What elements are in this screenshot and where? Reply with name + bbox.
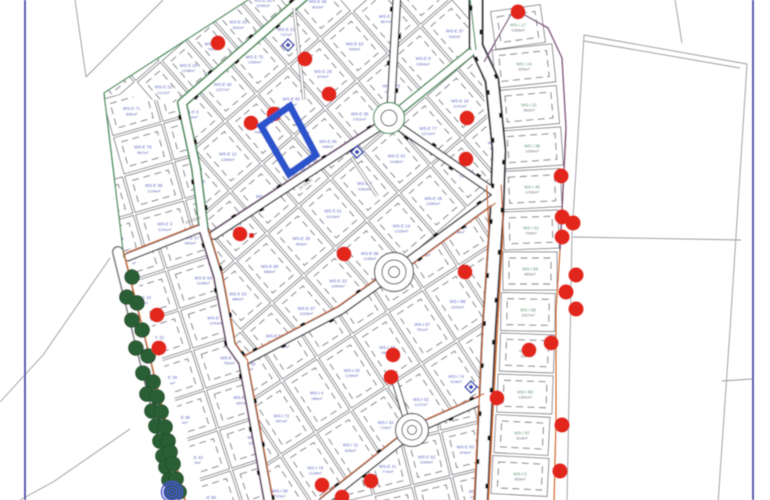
svg-text:788m²: 788m²	[311, 396, 323, 401]
svg-text:1236m²: 1236m²	[525, 190, 539, 195]
svg-text:925m²: 925m²	[345, 448, 357, 453]
svg-text:867m²: 867m²	[381, 19, 393, 24]
svg-text:1127m²: 1127m²	[414, 402, 428, 407]
svg-text:1104m²: 1104m²	[147, 188, 161, 193]
svg-text:1285m²: 1285m²	[426, 201, 440, 206]
svg-text:960m²: 960m²	[232, 297, 244, 302]
svg-text:932m²: 932m²	[449, 34, 461, 39]
svg-text:939m²: 939m²	[349, 47, 361, 52]
svg-text:830m²: 830m²	[126, 111, 138, 116]
svg-text:737m²: 737m²	[280, 32, 292, 37]
svg-text:781m²: 781m²	[417, 327, 429, 332]
svg-text:1199m²: 1199m²	[345, 373, 359, 378]
svg-text:1227m²: 1227m²	[216, 87, 230, 92]
svg-text:946m²: 946m²	[322, 144, 334, 149]
svg-text:818m²: 818m²	[516, 436, 528, 441]
svg-text:1027m²: 1027m²	[521, 313, 535, 318]
svg-text:1148m²: 1148m²	[390, 159, 404, 164]
svg-text:1018m²: 1018m²	[326, 214, 340, 219]
svg-text:1220m²: 1220m²	[395, 229, 409, 234]
svg-text:953m²: 953m²	[296, 241, 308, 246]
svg-text:1111m²: 1111m²	[157, 90, 170, 95]
svg-text:1213m²: 1213m²	[421, 131, 435, 136]
svg-text:1241m²: 1241m²	[158, 227, 172, 232]
svg-text:1134m²: 1134m²	[309, 471, 323, 476]
svg-text:825m²: 825m²	[518, 67, 530, 72]
svg-text:802m²: 802m²	[312, 4, 324, 9]
svg-text:967m²: 967m²	[137, 150, 149, 155]
svg-text:918m²: 918m²	[450, 379, 462, 384]
svg-text:888m²: 888m²	[264, 269, 276, 274]
svg-text:1185m²: 1185m²	[420, 460, 434, 465]
svg-text:890m²: 890m²	[524, 272, 536, 277]
svg-text:716m²: 716m²	[380, 425, 392, 430]
svg-text:962m²: 962m²	[523, 108, 535, 113]
svg-text:753m²: 753m²	[525, 231, 537, 236]
svg-text:774m²: 774m²	[382, 469, 394, 474]
svg-text:1011m²: 1011m²	[353, 117, 367, 122]
svg-text:874m²: 874m²	[317, 74, 329, 79]
svg-text:902m²: 902m²	[233, 25, 245, 30]
svg-text:1155m²: 1155m²	[363, 256, 377, 261]
svg-text:1292m²: 1292m²	[248, 60, 262, 65]
svg-text:1004m²: 1004m²	[416, 61, 430, 66]
svg-text:1308m²: 1308m²	[511, 28, 525, 33]
svg-text:1106m²: 1106m²	[197, 281, 211, 286]
svg-text:1301m²: 1301m²	[518, 395, 532, 400]
svg-text:1299m²: 1299m²	[221, 157, 235, 162]
svg-text:1099m²: 1099m²	[525, 149, 539, 154]
svg-text:969m²: 969m²	[185, 241, 197, 246]
svg-text:1090m²: 1090m²	[331, 284, 345, 289]
svg-text:997m²: 997m²	[276, 419, 288, 424]
svg-text:1141m²: 1141m²	[453, 104, 467, 109]
svg-text:1039m²: 1039m²	[256, 3, 270, 8]
svg-text:723m²: 723m²	[274, 494, 286, 499]
svg-text:976m²: 976m²	[460, 450, 472, 455]
svg-text:1192m²: 1192m²	[451, 304, 465, 309]
svg-text:1248m²: 1248m²	[182, 68, 196, 73]
svg-text:760m²: 760m²	[223, 361, 235, 366]
svg-text:1025m²: 1025m²	[300, 311, 314, 316]
svg-text:955m²: 955m²	[514, 477, 526, 482]
